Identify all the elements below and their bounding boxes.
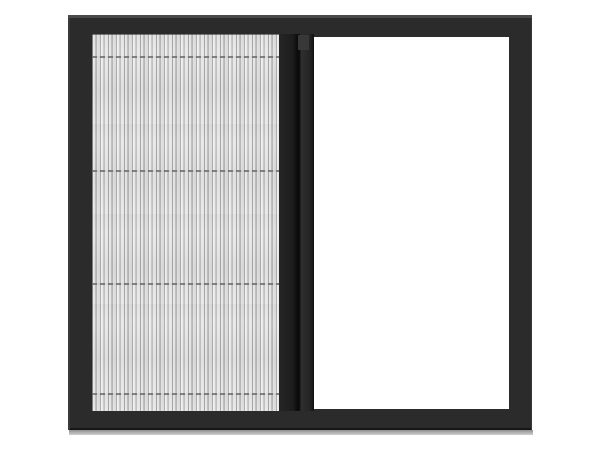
mesh-fold-seam bbox=[92, 283, 279, 285]
product-photo-canvas bbox=[0, 0, 600, 450]
mesh-fold-seam bbox=[92, 170, 279, 172]
mesh-fold-seam bbox=[92, 56, 279, 58]
mesh-fold-seam bbox=[92, 393, 279, 395]
pleated-mesh-panel bbox=[92, 34, 279, 411]
open-window-pane bbox=[314, 37, 509, 409]
screen-slider-handle-bar bbox=[279, 34, 314, 411]
drop-shadow bbox=[69, 430, 533, 435]
slider-track-notch bbox=[298, 35, 309, 50]
